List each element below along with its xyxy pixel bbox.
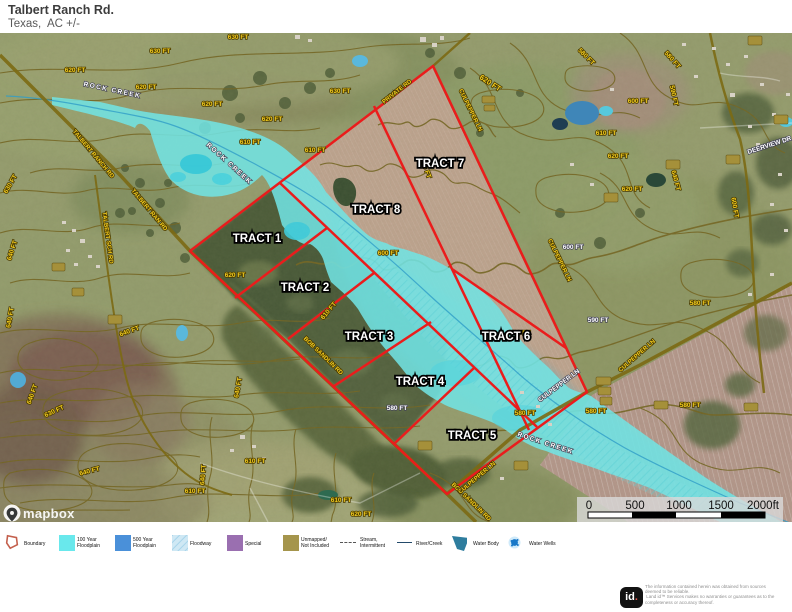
svg-text:600 FT: 600 FT (563, 244, 584, 251)
svg-text:TRACT 2: TRACT 2 (281, 282, 330, 294)
svg-text:TRACT 5: TRACT 5 (448, 430, 497, 442)
svg-text:620 FT: 620 FT (136, 84, 157, 91)
svg-text:610 FT: 610 FT (245, 458, 266, 465)
svg-text:500: 500 (625, 500, 644, 512)
svg-text:580 FT: 580 FT (586, 408, 607, 415)
svg-text:TRACT 8: TRACT 8 (352, 204, 401, 216)
svg-text:600 FT: 600 FT (378, 250, 399, 257)
svg-text:TRACT 3: TRACT 3 (345, 331, 394, 343)
svg-text:TRACT 4: TRACT 4 (396, 376, 445, 388)
svg-text:620 FT: 620 FT (622, 186, 643, 193)
svg-text:610 FT: 610 FT (596, 130, 617, 137)
svg-text:620 FT: 620 FT (225, 272, 246, 279)
svg-text:620 FT: 620 FT (65, 67, 86, 74)
svg-text:TRACT 1: TRACT 1 (233, 233, 282, 245)
svg-text:610 FT: 610 FT (305, 147, 326, 154)
svg-text:590 FT: 590 FT (588, 317, 609, 324)
svg-text:630 FT: 630 FT (150, 48, 171, 55)
svg-text:TRACT 7: TRACT 7 (416, 158, 465, 170)
svg-text:1000: 1000 (666, 500, 692, 512)
svg-text:600 FT: 600 FT (628, 98, 649, 105)
svg-text:610 FT: 610 FT (185, 488, 206, 495)
svg-text:2000ft: 2000ft (747, 500, 780, 512)
svg-text:TRACT 6: TRACT 6 (482, 331, 531, 343)
svg-text:580 FT: 580 FT (680, 402, 701, 409)
svg-text:630 FT: 630 FT (228, 34, 249, 41)
svg-text:580 FT: 580 FT (387, 405, 408, 412)
svg-text:620 FT: 620 FT (351, 511, 372, 518)
svg-text:630 FT: 630 FT (330, 88, 351, 95)
svg-text:1500: 1500 (708, 500, 734, 512)
svg-text:580 FT: 580 FT (515, 410, 536, 417)
svg-text:620 FT: 620 FT (262, 116, 283, 123)
svg-text:610 FT: 610 FT (240, 139, 261, 146)
svg-text:620 FT: 620 FT (608, 153, 629, 160)
svg-text:0: 0 (586, 500, 592, 512)
svg-text:620 FT: 620 FT (202, 101, 223, 108)
svg-text:580 FT: 580 FT (690, 300, 711, 307)
svg-text:610 FT: 610 FT (331, 497, 352, 504)
svg-text:mapbox: mapbox (23, 506, 75, 521)
